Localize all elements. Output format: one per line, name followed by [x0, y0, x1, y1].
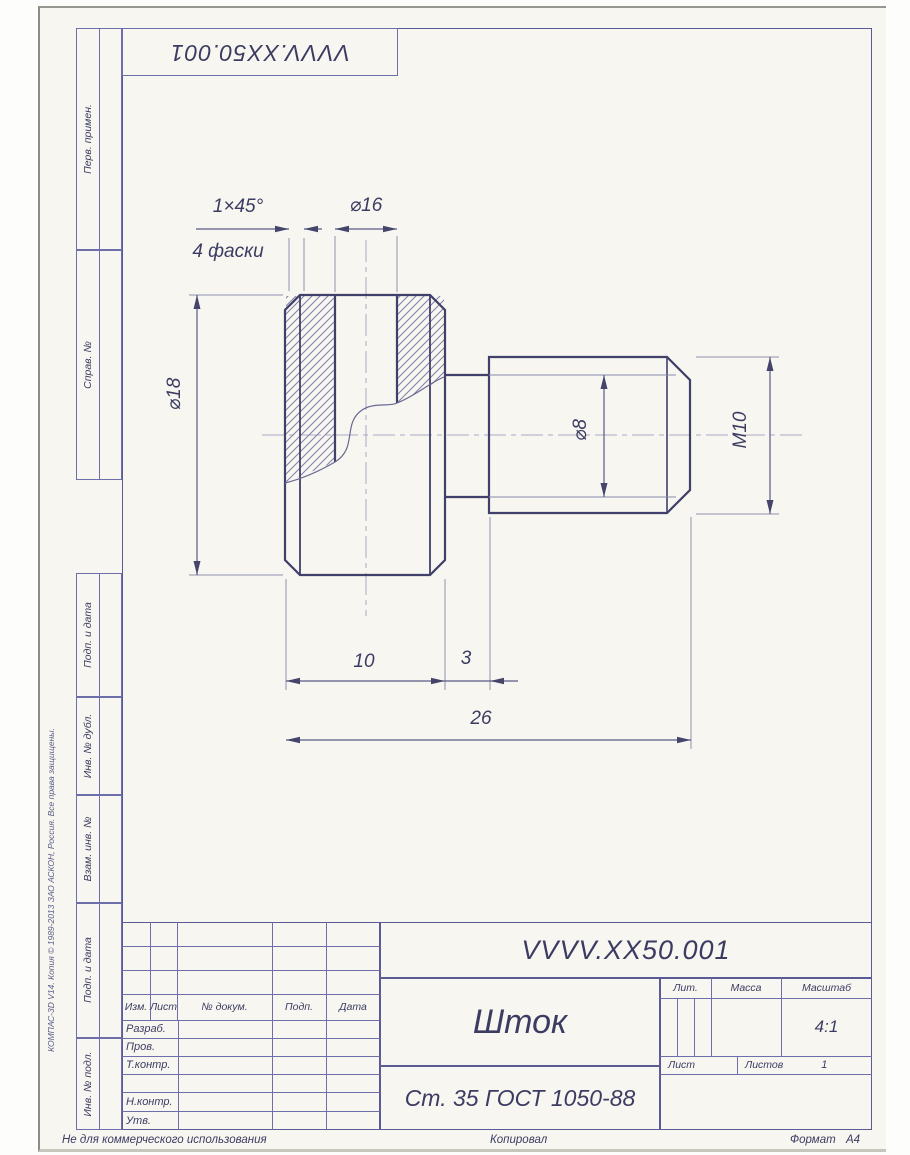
sheet-bottom-line — [660, 1074, 872, 1075]
scale-header-cell: Масштаб — [781, 978, 872, 998]
col-line-doc — [272, 922, 273, 1130]
staff-row-prov: Пров. — [126, 1038, 178, 1056]
footer-note: Не для коммерческого использования — [62, 1134, 267, 1146]
massa-label: Масса — [730, 982, 761, 994]
col-header-doc: № докум. — [201, 1001, 247, 1013]
material: Ст. 35 ГОСТ 1050-88 — [405, 1085, 636, 1112]
col-header-podp-cell: Подп. — [272, 996, 326, 1018]
part-name-box: Шток — [380, 978, 660, 1066]
col-header-podp: Подп. — [285, 1001, 313, 1013]
titleblock-designation-box: VVVV.XX50.001 — [380, 922, 872, 978]
change-row-line-3 — [122, 994, 380, 995]
lit-subcell-1 — [677, 998, 678, 1056]
col-header-list-cell: Лист — [150, 996, 177, 1018]
change-row-line-1 — [122, 946, 380, 947]
corner-stamp: VVVV.XX50.001 — [122, 28, 398, 76]
kompas-copyright-watermark: КОМПАС-3D V14. Копия © 1989-2013 ЗАО АСК… — [46, 728, 56, 1052]
corner-stamp-designation: VVVV.XX50.001 — [170, 39, 350, 66]
sheet-cell: Лист — [668, 1056, 737, 1074]
titleblock-designation: VVVV.XX50.001 — [521, 935, 730, 966]
staff-label-prov: Пров. — [126, 1041, 155, 1053]
sheets-cell: Листов 1 — [745, 1056, 872, 1074]
staff-row-nkontr: Н.контр. — [126, 1092, 178, 1111]
scale-value: 4:1 — [815, 1017, 839, 1037]
col-header-data: Дата — [339, 1001, 367, 1013]
footer-format-value: А4 — [846, 1134, 860, 1146]
scanned-drawing-sheet: { "corner_stamp": { "designation": "VVVV… — [0, 0, 910, 1155]
sheets-label: Листов — [745, 1059, 783, 1071]
sheet-divider — [737, 1056, 738, 1074]
graph-label-podp-data-1: Подп. и дата — [82, 602, 94, 668]
staff-label-nkontr: Н.контр. — [126, 1096, 173, 1108]
graph-label-vzam-inv: Взам. инв. № — [82, 817, 94, 882]
col-line-podp — [326, 922, 327, 1130]
staff-row-line-3 — [122, 1074, 380, 1075]
change-row-line-2 — [122, 970, 380, 971]
sheets-value: 1 — [821, 1059, 827, 1071]
graph-label-sprav-no: Справ. № — [82, 341, 94, 389]
graph-divider-bottom — [99, 573, 100, 1130]
staff-row-utv: Утв. — [126, 1111, 178, 1130]
graph-label-podp-data-2: Подп. и дата — [82, 937, 94, 1003]
col-header-data-cell: Дата — [326, 996, 380, 1018]
col-line-names — [178, 1020, 179, 1130]
footer-copied: Копировал — [490, 1134, 547, 1146]
staff-row-tkontr: Т.контр. — [126, 1056, 178, 1074]
sheet-label: Лист — [668, 1059, 695, 1071]
graph-label-perv-primen: Перв. примен. — [82, 104, 94, 174]
staff-label-tkontr: Т.контр. — [126, 1059, 170, 1071]
graph-divider-top — [99, 28, 100, 480]
graph-label-inv-dubl: Инв. № дубл. — [82, 714, 94, 779]
footer-format-label: Формат — [790, 1134, 836, 1146]
part-name: Шток — [473, 1003, 567, 1042]
lit-label: Лит. — [673, 982, 698, 994]
col-header-izm-cell: Изм. — [122, 996, 150, 1018]
graph-label-inv-podl: Инв. № подл. — [82, 1051, 94, 1116]
lit-header-cell: Лит. — [660, 978, 711, 998]
lit-subcell-2 — [694, 998, 695, 1056]
staff-label-utv: Утв. — [126, 1115, 151, 1127]
scale-label: Масштаб — [802, 982, 851, 994]
material-box: Ст. 35 ГОСТ 1050-88 — [380, 1066, 660, 1130]
scale-value-cell: 4:1 — [781, 998, 872, 1056]
col-header-izm: Изм. — [125, 1001, 147, 1013]
col-header-list: Лист — [150, 1001, 177, 1013]
col-header-doc-cell: № докум. — [177, 996, 272, 1018]
massa-header-cell: Масса — [711, 978, 781, 998]
staff-row-razrab: Разраб. — [126, 1020, 178, 1038]
staff-label-razrab: Разраб. — [126, 1023, 166, 1035]
